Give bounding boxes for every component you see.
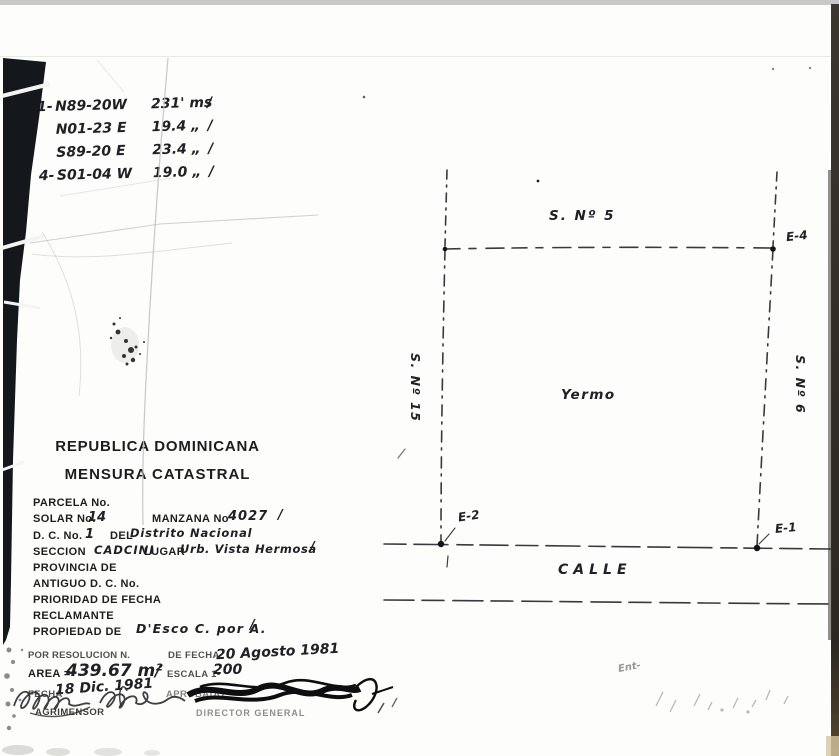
check-mark: / bbox=[250, 618, 255, 633]
field-dc-value: 1 bbox=[85, 527, 94, 542]
check-mark: / bbox=[208, 138, 214, 161]
bearing-value: N89-20W bbox=[55, 93, 152, 119]
plan-corner-e4-label: E-4 bbox=[785, 228, 808, 244]
field-area-label: AREA = bbox=[28, 668, 71, 680]
bearing-no bbox=[37, 119, 56, 142]
plan-street-label: CALLE bbox=[558, 562, 632, 578]
plan-center-yermo-label: Yermo bbox=[561, 387, 616, 403]
plan-right-solar-label: S. Nº 6 bbox=[793, 355, 808, 414]
field-solar-label: SOLAR No. bbox=[33, 513, 96, 525]
field-del-value: Distrito Nacional bbox=[130, 526, 252, 540]
plan-corner-e2-label: E-2 bbox=[457, 508, 480, 525]
field-lugar-value: Urb. Vista Hermosa bbox=[180, 542, 317, 556]
field-resolucion-label: POR RESOLUCION N. bbox=[28, 650, 130, 661]
check-mark: / bbox=[207, 115, 213, 138]
title-doc-type: MENSURA CATASTRAL bbox=[55, 466, 260, 483]
bearing-value: S01-04 W bbox=[57, 162, 154, 188]
bearing-no bbox=[38, 142, 57, 165]
bearing-row: 4- S01-04 W 19.0 „ / bbox=[39, 161, 215, 189]
page-top-edge bbox=[0, 56, 839, 57]
plan-corner-e1-label: E-1 bbox=[774, 520, 797, 536]
bearing-no: 1- bbox=[37, 96, 56, 119]
bearing-distance: 231' ms bbox=[151, 92, 208, 116]
check-mark: / bbox=[209, 161, 215, 184]
bearing-distance: 19.4 „ bbox=[151, 115, 208, 139]
bearing-value: N01-23 E bbox=[55, 116, 152, 142]
field-provincia-label: PROVINCIA DE bbox=[33, 562, 117, 574]
field-lugar-label: LUGAR bbox=[144, 546, 185, 558]
field-agrimensor-label: AGRIMENSOR bbox=[35, 707, 104, 718]
field-seccion-label: SECCION bbox=[33, 546, 86, 558]
field-manzana-value: 4027 bbox=[228, 509, 268, 524]
scanned-cadastral-plan: { "bearings": { "rows": [ {"no":"1-","be… bbox=[0, 0, 839, 756]
bearing-distance: 19.0 „ bbox=[153, 161, 210, 185]
field-director-label: DIRECTOR GENERAL bbox=[196, 708, 305, 718]
field-propiedad-label: PROPIEDAD DE bbox=[33, 626, 122, 638]
field-antiguo-label: ANTIGUO D. C. No. bbox=[33, 578, 139, 590]
bearing-list: 1- N89-20W 231' ms / N01-23 E 19.4 „ / S… bbox=[37, 92, 214, 189]
check-mark: / bbox=[207, 92, 213, 115]
field-propiedad-value: D'Esco C. por A. bbox=[136, 621, 267, 636]
field-aprobado-label: APROBADO bbox=[166, 689, 225, 700]
plan-left-solar-label: S. Nº 15 bbox=[408, 353, 423, 422]
field-reclamante-label: RECLAMANTE bbox=[33, 610, 114, 622]
bearing-distance: 23.4 „ bbox=[152, 138, 209, 162]
field-parcela-label: PARCELA No. bbox=[33, 497, 110, 509]
slash-mark: / bbox=[155, 662, 160, 680]
field-manzana-label: MANZANA No bbox=[152, 513, 229, 525]
bearing-no: 4- bbox=[39, 165, 58, 188]
field-escala-value: 200 bbox=[213, 662, 242, 678]
field-dc-label: D. C. No. bbox=[33, 530, 82, 542]
check-mark: / bbox=[310, 540, 315, 555]
field-defecha-label: DE FECHA bbox=[168, 650, 220, 661]
field-prioridad-label: PRIORIDAD DE FECHA bbox=[33, 594, 161, 606]
plan-top-solar-label: S. Nº 5 bbox=[549, 208, 616, 224]
title-country: REPUBLICA DOMINICANA bbox=[55, 438, 260, 455]
field-solar-value: 14 bbox=[88, 510, 106, 525]
check-mark: / bbox=[278, 508, 283, 523]
scan-top-bar bbox=[0, 0, 839, 5]
bearing-value: S89-20 E bbox=[56, 139, 153, 165]
